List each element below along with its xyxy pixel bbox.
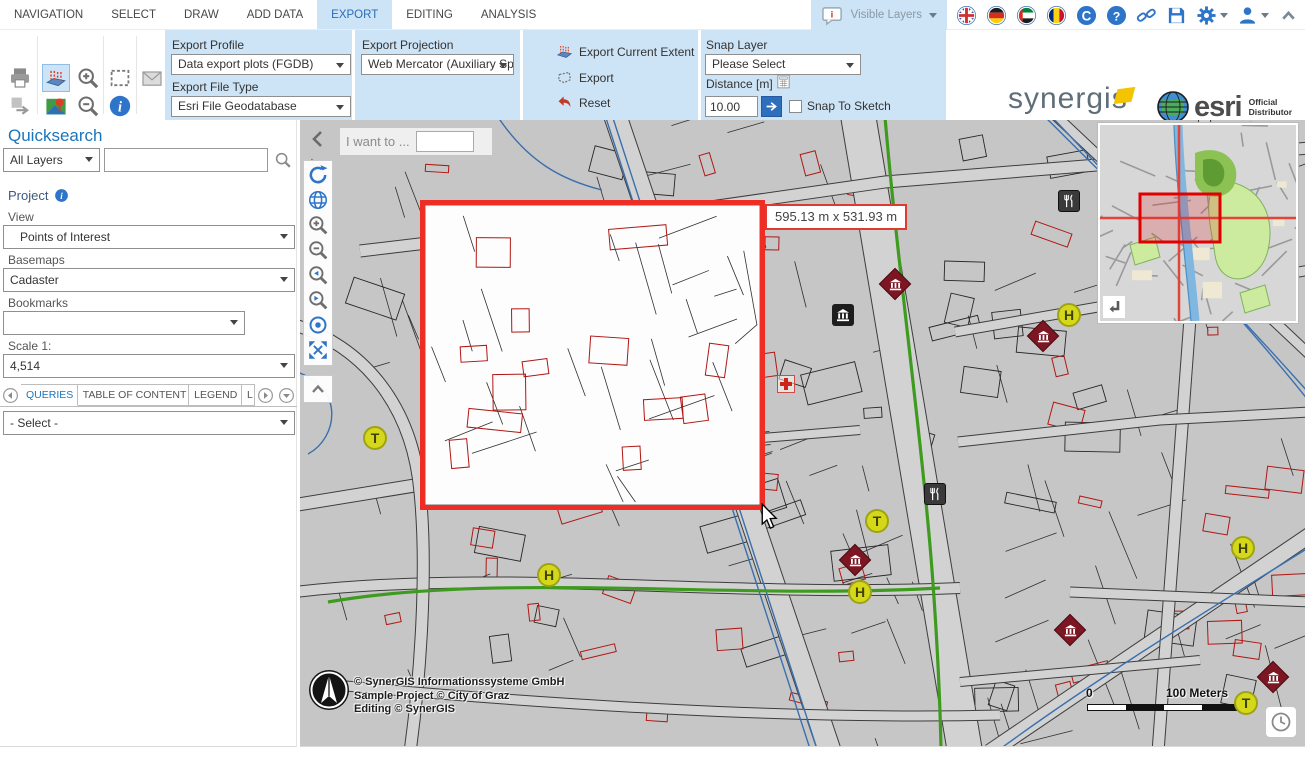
snap-to-sketch-label: Snap To Sketch <box>807 99 891 113</box>
overview-basemap <box>1100 125 1296 321</box>
chevron-down-icon <box>1261 13 1269 18</box>
language-german-flag-icon[interactable] <box>986 5 1007 26</box>
zoom-in-button[interactable] <box>76 66 100 90</box>
mouse-cursor <box>760 503 778 525</box>
export-extent-icon <box>556 43 573 60</box>
quicksearch-title[interactable]: Quicksearch <box>8 126 102 146</box>
bookmarks-label: Bookmarks <box>8 296 68 310</box>
select-rectangle-button[interactable] <box>108 66 132 90</box>
sidebar: Quicksearch All Layers Project i View Po… <box>0 120 297 747</box>
view-value: Points of Interest <box>20 230 110 244</box>
search-icon[interactable] <box>274 151 292 169</box>
marker-museum-diamond[interactable] <box>1032 325 1055 348</box>
export-profile-label: Export Profile <box>172 38 244 52</box>
apply-distance-button[interactable] <box>761 96 782 117</box>
map-copyright: © SynerGIS Informationssysteme GmbHSampl… <box>354 676 564 717</box>
project-info-icon[interactable]: i <box>54 188 69 203</box>
esri-globe-icon <box>1156 90 1190 124</box>
marker-stop-h[interactable]: H <box>1057 303 1081 327</box>
time-slider-button[interactable] <box>1266 707 1296 737</box>
marker-museum-diamond[interactable] <box>844 549 867 572</box>
export-extent-rectangle[interactable] <box>420 200 765 510</box>
quicksearch-input[interactable] <box>104 148 268 172</box>
svg-text:?: ? <box>1113 9 1121 23</box>
language-romanian-flag-icon[interactable] <box>1046 5 1067 26</box>
snap-layer-value: Please Select <box>712 57 785 71</box>
copyright-line: © SynerGIS Informationssysteme GmbH <box>354 676 564 690</box>
menu-tab-draw[interactable]: DRAW <box>170 0 233 29</box>
query-select-value: - Select - <box>10 416 58 430</box>
scale-value: 4,514 <box>10 359 40 373</box>
menubar-right-cluster: i Visible Layers C ? <box>811 0 1299 30</box>
save-icon[interactable] <box>1166 5 1187 26</box>
tabs-scroll-left-icon[interactable] <box>2 387 19 404</box>
export-current-extent-label: Export Current Extent <box>579 45 694 59</box>
copyright-line: Editing © SynerGIS <box>354 703 564 717</box>
layer-filter-value: All Layers <box>10 153 63 167</box>
project-label: Project <box>8 188 48 203</box>
collapse-sidebar-button[interactable] <box>308 128 328 150</box>
layer-filter-dropdown[interactable]: All Layers <box>3 148 100 172</box>
copyright-line: Sample Project © City of Graz <box>354 690 564 704</box>
user-icon <box>1237 5 1258 26</box>
query-select-dropdown[interactable]: - Select - <box>3 411 295 435</box>
marker-stop-t[interactable]: T <box>1234 691 1258 715</box>
reset-label: Reset <box>579 96 610 110</box>
view-dropdown[interactable]: Points of Interest <box>3 225 295 249</box>
reset-icon <box>556 94 573 111</box>
marker-pharmacy-cross[interactable] <box>777 375 795 393</box>
marker-stop-h[interactable]: H <box>537 563 561 587</box>
marker-museum-square[interactable] <box>832 304 854 326</box>
scalebar-end-label: 100 Meters <box>1166 686 1228 700</box>
print-button[interactable] <box>8 66 32 90</box>
snap-layer-dropdown[interactable]: Please Select <box>705 54 861 75</box>
share-link-icon[interactable] <box>1136 5 1157 26</box>
export-profile-dropdown[interactable]: Data export plots (FGDB) <box>171 54 351 75</box>
chevron-down-icon <box>929 13 937 18</box>
marker-museum-diamond[interactable] <box>884 273 907 296</box>
menu-tab-navigation[interactable]: NAVIGATION <box>0 0 97 29</box>
gear-icon <box>1196 5 1217 26</box>
map-zoom-out-icon[interactable] <box>307 239 329 262</box>
visible-layers-dropdown[interactable]: i Visible Layers <box>811 0 947 30</box>
svg-text:C: C <box>1082 8 1092 23</box>
zoom-full-extent-icon[interactable] <box>307 339 329 362</box>
identify-button[interactable]: i <box>108 94 132 118</box>
my-location-icon[interactable] <box>307 314 329 337</box>
esri-wordmark: esri <box>1194 91 1242 124</box>
menu-tab-editing[interactable]: EDITING <box>392 0 467 29</box>
map-zoom-in-icon[interactable] <box>307 214 329 237</box>
sidebar-tab-legend[interactable]: LEGEND <box>189 384 242 406</box>
export-projection-label: Export Projection <box>362 38 453 52</box>
distance-label: Distance [m] <box>706 77 773 91</box>
map-canvas[interactable]: 595.13 m x 531.93 m I want to ... © Syne… <box>300 120 1305 747</box>
svg-text:i: i <box>830 9 833 20</box>
export-label: Export <box>579 71 614 85</box>
distance-input[interactable] <box>705 96 758 117</box>
basemaps-label: Basemaps <box>8 253 65 267</box>
sidebar-tab-table-of-content[interactable]: TABLE OF CONTENT <box>78 384 189 406</box>
export-projection-value: Web Mercator (Auxiliary Sp... <box>368 57 514 71</box>
info-bubble-icon: i <box>821 5 844 26</box>
menu-tab-export[interactable]: EXPORT <box>317 0 392 29</box>
north-arrow-icon <box>308 669 350 711</box>
send-map-button[interactable] <box>8 94 32 118</box>
basemaps-dropdown[interactable]: Cadaster <box>3 268 295 292</box>
menu-tabs: NAVIGATIONSELECTDRAWADD DATAEXPORTEDITIN… <box>0 0 550 29</box>
sidebar-tab-queries[interactable]: QUERIES <box>21 384 78 406</box>
measurement-tooltip: 595.13 m x 531.93 m <box>765 204 907 230</box>
marker-stop-h[interactable]: H <box>848 580 872 604</box>
help-icon[interactable]: ? <box>1106 5 1127 26</box>
mail-button[interactable] <box>140 66 164 90</box>
scale-dropdown[interactable]: 4,514 <box>3 354 295 378</box>
i-want-to-widget[interactable]: I want to ... <box>340 128 492 155</box>
view-label: View <box>8 210 34 224</box>
i-want-to-input[interactable] <box>416 131 474 152</box>
export-profile-value: Data export plots (FGDB) <box>178 57 313 71</box>
export-3d-button[interactable] <box>42 64 70 92</box>
map-toolbar <box>303 160 333 366</box>
sidebar-tab-l[interactable]: L <box>242 384 255 406</box>
export-current-extent-button[interactable]: Export Current Extent <box>556 43 694 60</box>
export-sketch-icon <box>556 69 573 86</box>
overview-map[interactable] <box>1098 123 1298 323</box>
export-file-type-value: Esri File Geodatabase <box>178 99 297 113</box>
tabs-overflow-icon[interactable] <box>278 387 295 404</box>
marker-museum-diamond[interactable] <box>1262 666 1285 689</box>
collapse-ribbon-icon[interactable] <box>1278 5 1299 26</box>
night-mode-icon[interactable]: C <box>1076 5 1097 26</box>
snap-layer-label: Snap Layer <box>706 38 767 52</box>
marker-museum-diamond[interactable] <box>1059 619 1082 642</box>
marker-restaurant[interactable] <box>924 483 946 505</box>
chevron-down-icon <box>1220 13 1228 18</box>
export-file-type-label: Export File Type <box>172 80 258 94</box>
marker-restaurant[interactable] <box>1058 190 1080 212</box>
visible-layers-label: Visible Layers <box>851 9 922 21</box>
settings-menu[interactable] <box>1196 5 1228 26</box>
snap-to-sketch-checkbox[interactable] <box>789 100 802 113</box>
export-projection-dropdown[interactable]: Web Mercator (Auxiliary Sp... <box>361 54 514 75</box>
user-menu[interactable] <box>1237 5 1269 26</box>
tabs-scroll-right-icon[interactable] <box>257 387 274 404</box>
locate-on-map-button[interactable] <box>44 94 68 118</box>
zoom-out-button[interactable] <box>76 94 100 118</box>
scalebar <box>1087 704 1241 711</box>
marker-stop-t[interactable]: T <box>865 509 889 533</box>
full-extent-globe-icon[interactable] <box>307 189 329 212</box>
sidebar-tab-bar: QUERIESTABLE OF CONTENTLEGENDL <box>0 384 297 407</box>
refresh-map-icon[interactable] <box>307 164 329 187</box>
marker-stop-t[interactable]: T <box>363 426 387 450</box>
menu-tab-analysis[interactable]: ANALYSIS <box>467 0 550 29</box>
top-menubar: NAVIGATIONSELECTDRAWADD DATAEXPORTEDITIN… <box>0 0 1305 30</box>
bookmarks-dropdown[interactable] <box>3 311 245 335</box>
language-arabic-flag-icon[interactable] <box>1016 5 1037 26</box>
menu-tab-select[interactable]: SELECT <box>97 0 170 29</box>
esri-logo: esri OfficialDistributor <box>1156 90 1292 124</box>
esri-distributor-label: OfficialDistributor <box>1249 97 1292 117</box>
toolbar-collapse-button[interactable] <box>303 375 333 403</box>
synergis-leaf-icon <box>1114 87 1136 104</box>
overview-collapse-button[interactable] <box>1103 296 1125 318</box>
svg-text:i: i <box>118 99 122 115</box>
basemaps-value: Cadaster <box>10 273 59 287</box>
synergis-logo: synergis <box>1008 82 1128 116</box>
scalebar-start-label: 0 <box>1086 686 1093 700</box>
calculator-icon[interactable] <box>776 74 791 89</box>
export-file-type-dropdown[interactable]: Esri File Geodatabase <box>171 96 351 117</box>
project-row[interactable]: Project i <box>8 188 69 203</box>
language-english-flag-icon[interactable] <box>956 5 977 26</box>
next-extent-icon[interactable] <box>307 289 329 312</box>
reset-button[interactable]: Reset <box>556 94 610 111</box>
export-button[interactable]: Export <box>556 69 614 86</box>
scale-label: Scale 1: <box>8 339 51 353</box>
export-ribbon: i Export Profile Data export plots (FGDB… <box>0 30 1305 120</box>
i-want-to-label: I want to ... <box>346 134 410 149</box>
previous-extent-icon[interactable] <box>307 264 329 287</box>
menu-tab-add-data[interactable]: ADD DATA <box>233 0 317 29</box>
marker-stop-h[interactable]: H <box>1231 536 1255 560</box>
